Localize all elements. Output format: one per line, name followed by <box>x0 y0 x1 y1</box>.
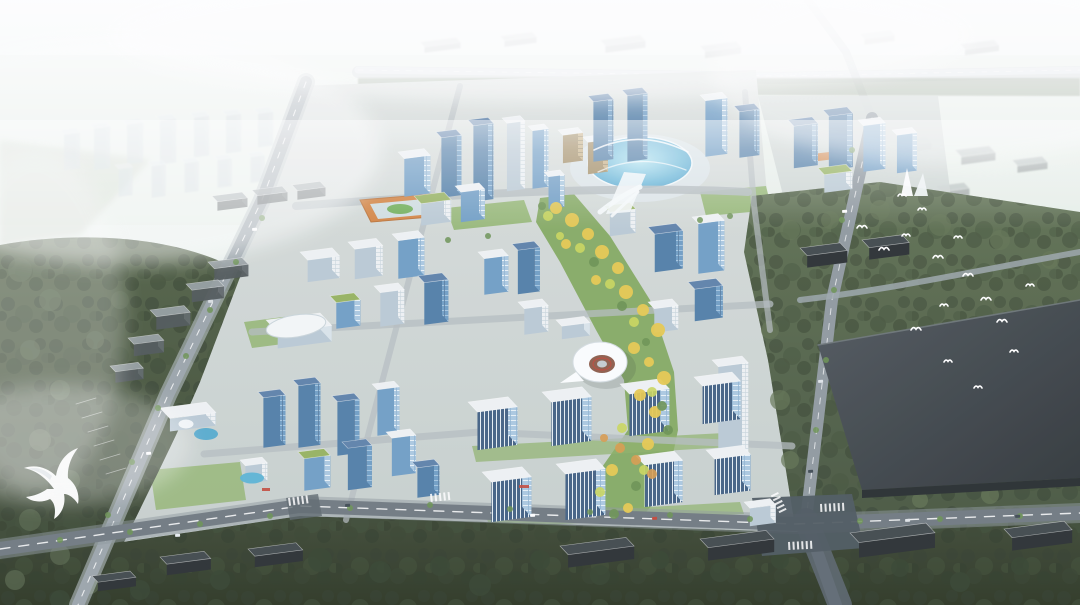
aerial-rendering-canvas <box>0 0 1080 605</box>
masterplan-rendering <box>0 0 1080 605</box>
cool-tint <box>0 0 1080 605</box>
layer-haze <box>0 0 1080 605</box>
